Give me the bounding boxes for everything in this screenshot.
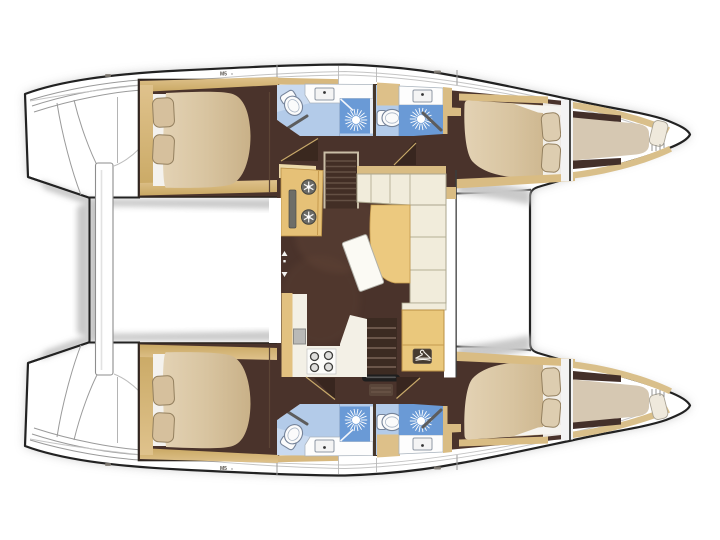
svg-text:M5: M5 [220,466,227,472]
svg-text:M5: M5 [220,72,227,78]
svg-text:x: x [231,466,233,471]
svg-text:x: x [231,71,233,76]
